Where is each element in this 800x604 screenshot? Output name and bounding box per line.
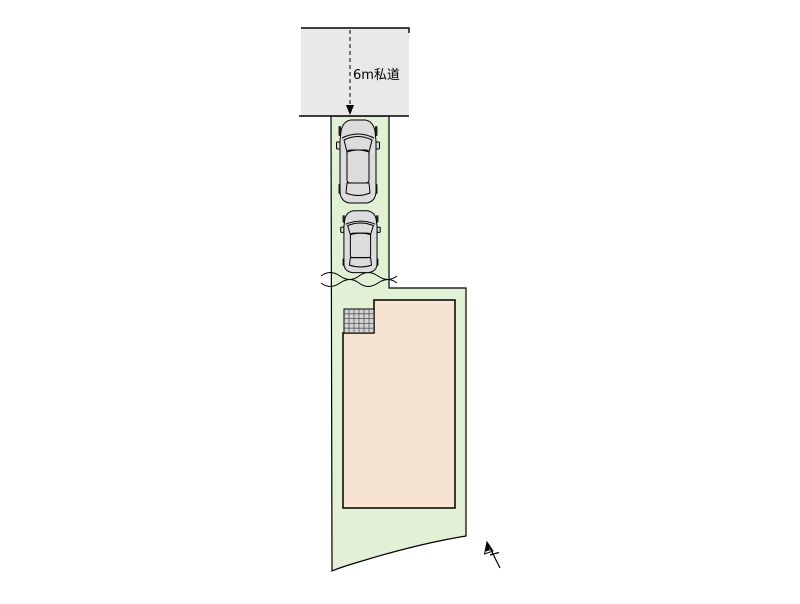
site-plan-drawing: 6m私道 (0, 0, 800, 600)
site-plan-canvas: 6m私道 (0, 0, 800, 600)
north-arrow-tick (490, 553, 499, 556)
north-arrow-shaft (488, 544, 500, 568)
car-top-view-icon (341, 211, 381, 273)
private-road-area: 6m私道 (299, 28, 409, 116)
car-top-view-icon (337, 120, 380, 203)
north-arrow-icon (485, 542, 501, 568)
tile-grid-icon (344, 309, 374, 333)
road-width-label: 6m私道 (353, 68, 400, 83)
